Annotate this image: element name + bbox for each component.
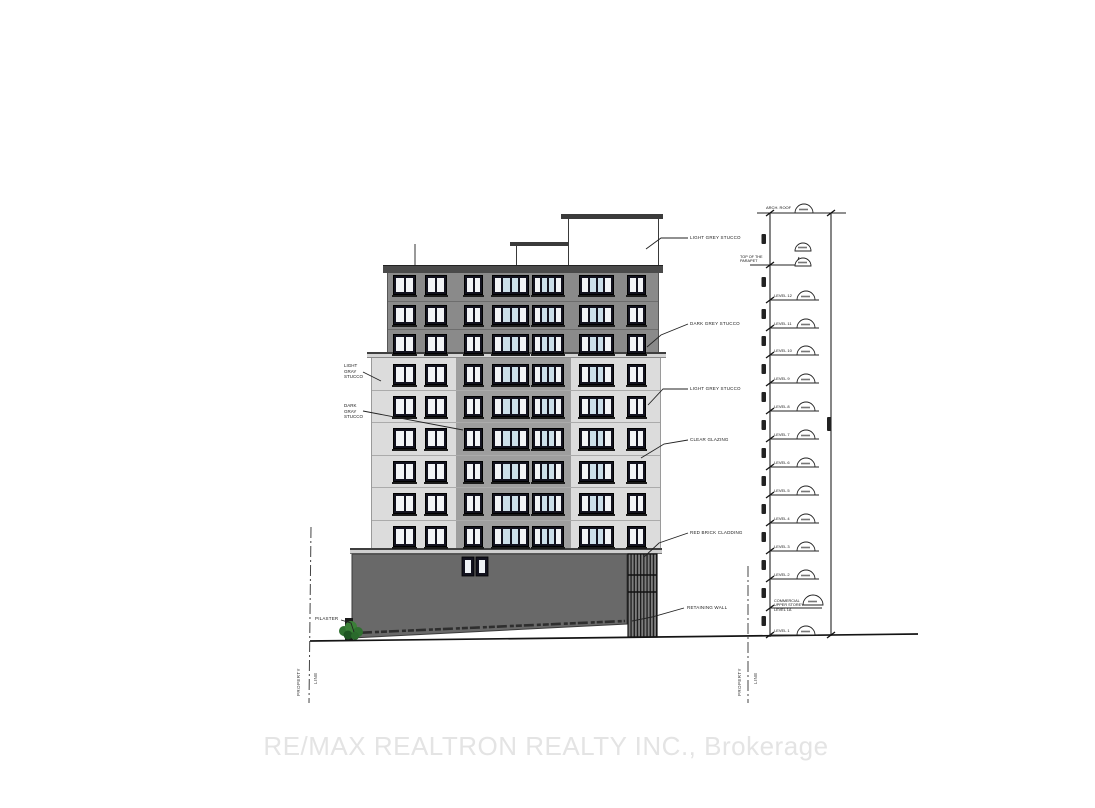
label-dark-grey-stucco: DARK GREY STUCCO xyxy=(690,321,740,327)
elevation-bubble xyxy=(797,570,815,579)
property-line-text-right: PROPERTY xyxy=(737,652,742,696)
window xyxy=(464,526,483,547)
window-pane xyxy=(556,367,561,382)
window-pane xyxy=(503,308,509,322)
window-pane xyxy=(437,278,444,292)
window-pane xyxy=(605,337,611,351)
window-pane xyxy=(437,431,444,446)
window xyxy=(532,428,564,449)
window xyxy=(579,428,614,449)
window-pane xyxy=(396,399,404,414)
window-pane xyxy=(495,308,501,322)
window xyxy=(532,461,564,482)
window-pane xyxy=(520,399,526,414)
window-pane xyxy=(467,431,473,446)
window xyxy=(464,364,483,385)
window-pane xyxy=(598,399,604,414)
window xyxy=(532,275,564,295)
window-pane xyxy=(512,496,518,511)
window-pane xyxy=(638,464,644,479)
window-pane xyxy=(406,529,414,544)
label-retaining-wall: RETAINING WALL xyxy=(687,605,727,611)
window-pane xyxy=(630,337,636,351)
window-pane xyxy=(605,367,611,382)
window-pane xyxy=(598,367,604,382)
floor-line xyxy=(372,520,660,521)
window-pane xyxy=(598,496,604,511)
window-pane xyxy=(512,308,518,322)
dimension-text-mark xyxy=(762,234,767,244)
window-pane xyxy=(428,529,435,544)
window-pane xyxy=(406,337,414,351)
window-pane xyxy=(406,464,414,479)
dimension-text-mark xyxy=(762,336,767,346)
window xyxy=(492,275,529,295)
window-pane xyxy=(542,431,547,446)
window-pane xyxy=(549,308,554,322)
dimension-text-mark xyxy=(762,420,767,430)
window-pane xyxy=(630,496,636,511)
window-pane xyxy=(428,431,435,446)
window xyxy=(425,493,447,514)
window-pane xyxy=(495,464,501,479)
window-pane xyxy=(605,464,611,479)
window xyxy=(627,493,646,514)
label-arch-roof: ARCH. ROOF xyxy=(766,206,791,211)
floor-line xyxy=(372,390,660,391)
window-pane xyxy=(590,308,596,322)
window-pane xyxy=(467,337,473,351)
window-pane xyxy=(542,337,547,351)
window xyxy=(425,461,447,482)
window-pane xyxy=(406,308,414,322)
window-pane xyxy=(582,337,588,351)
label-level-5: LEVEL 5 xyxy=(774,489,790,494)
window-pane xyxy=(512,431,518,446)
floor-line xyxy=(372,455,660,456)
label-level-9: LEVEL 9 xyxy=(774,377,790,382)
window xyxy=(579,275,614,295)
label-line: STUCCO xyxy=(344,374,364,380)
dimension-tick xyxy=(766,380,774,386)
planting-shrub xyxy=(339,621,363,640)
window xyxy=(627,428,646,449)
window-pane xyxy=(495,496,501,511)
elevation-bubble xyxy=(797,346,815,355)
elevation-bubble xyxy=(797,514,815,523)
property-line-text-right2: LINE xyxy=(753,660,758,684)
window xyxy=(464,428,483,449)
dimension-tick xyxy=(766,436,774,442)
window-pane xyxy=(475,464,481,479)
property-line-text-left2: LINE xyxy=(313,660,318,684)
window xyxy=(579,493,614,514)
window xyxy=(393,334,416,354)
window xyxy=(492,334,529,354)
window-pane xyxy=(549,337,554,351)
dimension-tick xyxy=(766,520,774,526)
window-pane xyxy=(605,529,611,544)
window-pane xyxy=(495,278,501,292)
window-pane xyxy=(428,367,435,382)
window-pane xyxy=(503,431,509,446)
window xyxy=(393,305,416,325)
window-pane xyxy=(638,431,644,446)
dimension-tick xyxy=(827,210,835,216)
window-pane xyxy=(556,399,561,414)
window-pane xyxy=(542,308,547,322)
floor-line xyxy=(372,487,660,488)
window-pane xyxy=(512,464,518,479)
window-pane xyxy=(556,431,561,446)
window xyxy=(492,428,529,449)
brokerage-watermark: RE/MAX REALTRON REALTY INC., Brokerage xyxy=(263,731,828,762)
window-pane xyxy=(630,529,636,544)
window-pane xyxy=(598,464,604,479)
window xyxy=(464,493,483,514)
label-level-6: LEVEL 6 xyxy=(774,461,790,466)
window-pane xyxy=(467,496,473,511)
dimension-tick xyxy=(766,352,774,358)
window xyxy=(627,461,646,482)
window-pane xyxy=(396,308,404,322)
window-pane xyxy=(437,367,444,382)
window-pane xyxy=(535,308,540,322)
floor-line xyxy=(388,329,658,330)
window-pane xyxy=(495,431,501,446)
dimension-tick xyxy=(766,210,774,216)
dimension-tick xyxy=(766,325,774,331)
basement-window-pair xyxy=(462,557,488,576)
dimension-text-mark xyxy=(762,277,767,287)
window-pane xyxy=(556,278,561,292)
window-pane xyxy=(475,337,481,351)
window xyxy=(532,364,564,385)
window-pane xyxy=(428,496,435,511)
window-pane xyxy=(520,367,526,382)
window xyxy=(393,364,416,385)
window-pane xyxy=(630,367,636,382)
window-pane xyxy=(520,278,526,292)
window-pane xyxy=(512,367,518,382)
label-pilaster: PILASTER xyxy=(315,616,338,622)
elevation-bubble xyxy=(797,291,815,300)
elevation-bubble xyxy=(795,204,813,213)
window-pane xyxy=(428,464,435,479)
window xyxy=(393,428,416,449)
window-pane xyxy=(535,431,540,446)
window-pane xyxy=(598,308,604,322)
dimension-tick xyxy=(766,605,774,611)
label-level-10: LEVEL 10 xyxy=(774,349,792,354)
window xyxy=(627,396,646,417)
window-pane xyxy=(590,278,596,292)
window-pane xyxy=(503,399,509,414)
window xyxy=(464,461,483,482)
grade-line xyxy=(310,634,918,641)
window-pane xyxy=(503,367,509,382)
window-pane xyxy=(549,278,554,292)
window-pane xyxy=(535,278,540,292)
window-pane xyxy=(590,399,596,414)
elevation-bubble xyxy=(797,542,815,551)
penthouse-large xyxy=(568,218,659,268)
label-light-grey-stucco-roof: LIGHT GREY STUCCO xyxy=(690,235,741,241)
window-pane xyxy=(605,399,611,414)
label-level-3: LEVEL 3 xyxy=(774,545,790,550)
window-pane xyxy=(582,308,588,322)
bubble-connector xyxy=(796,257,799,265)
window-pane xyxy=(542,278,547,292)
window-pane xyxy=(475,431,481,446)
window-pane xyxy=(542,399,547,414)
window xyxy=(532,526,564,547)
window-pane xyxy=(542,367,547,382)
window-pane xyxy=(630,431,636,446)
window-pane xyxy=(582,496,588,511)
window xyxy=(492,461,529,482)
window-pane xyxy=(520,337,526,351)
window-pane xyxy=(556,308,561,322)
dimension-text-mark xyxy=(762,448,767,458)
label-line: STUCCO xyxy=(344,414,364,420)
elevation-bubble xyxy=(797,486,815,495)
dimension-tick xyxy=(827,632,835,638)
window-pane xyxy=(396,496,404,511)
window-pane xyxy=(396,278,404,292)
window-pane xyxy=(630,399,636,414)
window-pane xyxy=(503,464,509,479)
dimension-tick xyxy=(766,262,774,268)
window-pane xyxy=(503,529,509,544)
dimension-tick xyxy=(766,464,774,470)
window xyxy=(627,526,646,547)
window xyxy=(425,364,447,385)
window xyxy=(425,334,447,354)
window xyxy=(579,396,614,417)
window-pane xyxy=(475,496,481,511)
label-line: PARAPET xyxy=(740,259,763,263)
dimension-tick xyxy=(766,297,774,303)
window-pane xyxy=(396,431,404,446)
window-pane xyxy=(520,496,526,511)
window-pane xyxy=(542,464,547,479)
window-pane xyxy=(535,337,540,351)
window-pane xyxy=(535,496,540,511)
window-pane xyxy=(475,367,481,382)
window xyxy=(464,396,483,417)
window xyxy=(393,396,416,417)
elevation-bubble xyxy=(797,430,815,439)
window-pane xyxy=(467,367,473,382)
window xyxy=(425,305,447,325)
window-pane xyxy=(396,464,404,479)
window-pane xyxy=(556,337,561,351)
window-pane xyxy=(542,496,547,511)
window-pane xyxy=(605,496,611,511)
dimension-tick xyxy=(766,576,774,582)
window-pane xyxy=(520,529,526,544)
window-pane xyxy=(549,464,554,479)
elevation-bubble xyxy=(803,595,823,605)
window-pane xyxy=(590,529,596,544)
window xyxy=(393,526,416,547)
window xyxy=(393,275,416,295)
elevation-bubble xyxy=(797,458,815,467)
window xyxy=(425,428,447,449)
window-pane xyxy=(582,278,588,292)
window-pane xyxy=(638,399,644,414)
property-line-text-left: PROPERTY xyxy=(296,652,301,696)
window-pane xyxy=(437,529,444,544)
window xyxy=(532,334,564,354)
window-pane xyxy=(590,431,596,446)
window-pane xyxy=(512,337,518,351)
window-pane xyxy=(549,431,554,446)
window-pane xyxy=(590,337,596,351)
window-pane xyxy=(535,399,540,414)
window-pane xyxy=(437,399,444,414)
window xyxy=(579,461,614,482)
window-pane xyxy=(590,464,596,479)
window-pane xyxy=(590,367,596,382)
dimension-tick xyxy=(766,632,774,638)
window-pane xyxy=(582,399,588,414)
window-pane xyxy=(495,337,501,351)
window xyxy=(464,275,483,295)
window-pane xyxy=(582,464,588,479)
dimension-text-mark xyxy=(762,616,767,626)
elevation-bubble xyxy=(797,626,815,635)
window-pane xyxy=(598,337,604,351)
window-pane xyxy=(437,464,444,479)
pilaster xyxy=(345,618,353,640)
window-pane xyxy=(605,308,611,322)
window-pane xyxy=(495,367,501,382)
label-line: LEVEL 1A xyxy=(774,608,804,612)
window-pane xyxy=(467,529,473,544)
label-light-gray-stucco-left: LIGHT GRAY STUCCO xyxy=(344,363,364,380)
window-pane xyxy=(475,399,481,414)
window xyxy=(579,364,614,385)
window xyxy=(425,526,447,547)
window xyxy=(627,364,646,385)
window-pane xyxy=(556,496,561,511)
retaining-wall-hatched-screen xyxy=(628,554,657,637)
floor-line xyxy=(372,422,660,423)
window-pane xyxy=(428,308,435,322)
window xyxy=(579,526,614,547)
elevation-bubble xyxy=(795,258,811,266)
window-pane xyxy=(512,278,518,292)
window-pane xyxy=(598,278,604,292)
window xyxy=(492,305,529,325)
dimension-text-mark xyxy=(762,364,767,374)
dimension-text-mark xyxy=(762,504,767,514)
dimension-text-mark xyxy=(762,560,767,570)
window-pane xyxy=(406,278,414,292)
label-red-brick-cladding: RED BRICK CLADDING xyxy=(690,530,743,536)
window-pane xyxy=(630,308,636,322)
window-pane xyxy=(535,367,540,382)
elevation-bubble xyxy=(797,402,815,411)
window-pane xyxy=(467,278,473,292)
window xyxy=(532,396,564,417)
dimension-text-mark xyxy=(762,588,767,598)
window-pane xyxy=(467,308,473,322)
window xyxy=(532,493,564,514)
window-pane xyxy=(428,337,435,351)
label-level-12: LEVEL 12 xyxy=(774,294,792,299)
label-light-grey-stucco: LIGHT GREY STUCCO xyxy=(690,386,741,392)
window xyxy=(425,396,447,417)
window-pane xyxy=(605,431,611,446)
window xyxy=(579,334,614,354)
window-pane xyxy=(503,337,509,351)
window-pane xyxy=(630,464,636,479)
window-pane xyxy=(582,367,588,382)
window-pane xyxy=(520,308,526,322)
window xyxy=(627,334,646,354)
label-ground-floor: COMMERCIAL UPPER STOREY LEVEL 1A xyxy=(774,599,804,612)
window xyxy=(464,334,483,354)
window-pane xyxy=(406,367,414,382)
elevation-bubble xyxy=(797,374,815,383)
window xyxy=(393,461,416,482)
window-pane xyxy=(475,308,481,322)
window-pane xyxy=(406,431,414,446)
window xyxy=(393,493,416,514)
label-dark-gray-stucco-left: DARK GRAY STUCCO xyxy=(344,403,364,420)
window-pane xyxy=(437,337,444,351)
window-pane xyxy=(542,529,547,544)
window-pane xyxy=(406,496,414,511)
retaining-wall-base xyxy=(352,554,627,638)
label-clear-glazing: CLEAR GLAZING xyxy=(690,437,729,443)
window xyxy=(464,305,483,325)
window-pane xyxy=(582,529,588,544)
roof-cornice xyxy=(383,265,663,273)
elevation-drawing-sheet: LIGHT GREY STUCCO DARK GREY STUCCO LIGHT… xyxy=(0,0,1095,808)
dimension-text-mark xyxy=(762,532,767,542)
window-pane xyxy=(428,278,435,292)
label-level-8: LEVEL 8 xyxy=(774,405,790,410)
window-pane xyxy=(556,529,561,544)
wall-base-texture xyxy=(354,621,625,633)
window-pane xyxy=(549,496,554,511)
dimension-tick xyxy=(766,408,774,414)
elevation-bubble xyxy=(795,243,811,251)
label-top-of-parapet: TOP OF THE PARAPET xyxy=(740,255,763,264)
window-pane xyxy=(630,278,636,292)
dimension-text-mark xyxy=(762,392,767,402)
window-pane xyxy=(590,496,596,511)
window-pane xyxy=(598,431,604,446)
window-pane xyxy=(406,399,414,414)
window-pane xyxy=(638,308,644,322)
window xyxy=(532,305,564,325)
window-pane xyxy=(638,337,644,351)
window-pane xyxy=(503,496,509,511)
label-level-7: LEVEL 7 xyxy=(774,433,790,438)
dimension-tick xyxy=(766,548,774,554)
window-pane xyxy=(556,464,561,479)
floor-line xyxy=(388,301,658,302)
window-pane xyxy=(428,399,435,414)
label-level-4: LEVEL 4 xyxy=(774,517,790,522)
label-level-11: LEVEL 11 xyxy=(774,322,792,327)
window xyxy=(492,493,529,514)
